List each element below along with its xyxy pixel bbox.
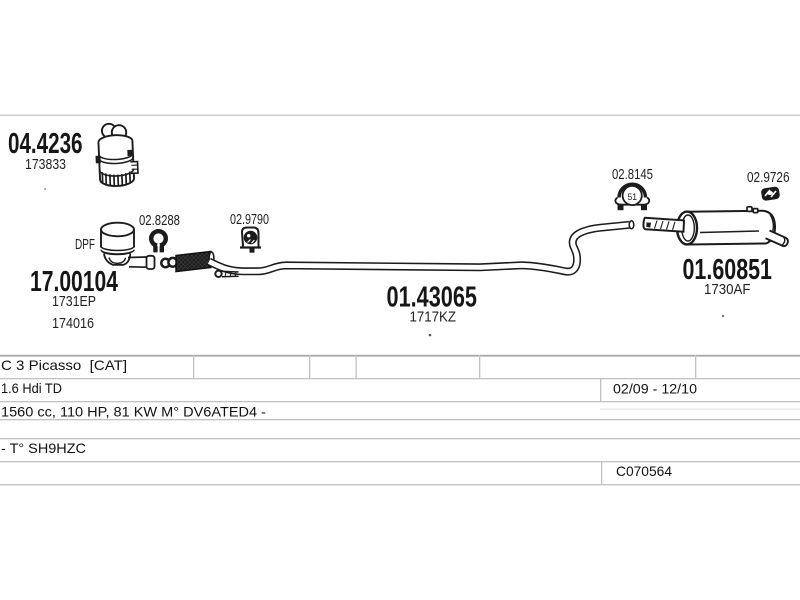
svg-text:174016: 174016 xyxy=(52,315,94,332)
svg-text:173833: 173833 xyxy=(25,156,66,173)
svg-text:1560 cc, 110 HP, 81 KW M° DV6A: 1560 cc, 110 HP, 81 KW M° DV6ATED4 - xyxy=(1,404,266,420)
svg-text:C070564: C070564 xyxy=(616,463,672,479)
svg-text:51: 51 xyxy=(628,192,638,203)
svg-text:02.9726: 02.9726 xyxy=(747,170,790,186)
svg-text:DPF: DPF xyxy=(75,237,95,253)
svg-text:02.8288: 02.8288 xyxy=(139,213,180,229)
svg-text:1731EP: 1731EP xyxy=(52,293,96,310)
svg-text:02.9790: 02.9790 xyxy=(230,212,269,228)
svg-text:C 3 Picasso [CAT]: C 3 Picasso [CAT] xyxy=(1,357,127,373)
svg-text:1.6 Hdi TD: 1.6 Hdi TD xyxy=(1,380,62,396)
svg-text:02.8145: 02.8145 xyxy=(612,167,653,183)
svg-text:02/09 - 12/10: 02/09 - 12/10 xyxy=(613,381,697,397)
svg-text:1730AF: 1730AF xyxy=(704,281,751,298)
svg-text:- T° SH9HZC: - T° SH9HZC xyxy=(1,440,86,456)
svg-text:1717KZ: 1717KZ xyxy=(410,309,457,326)
